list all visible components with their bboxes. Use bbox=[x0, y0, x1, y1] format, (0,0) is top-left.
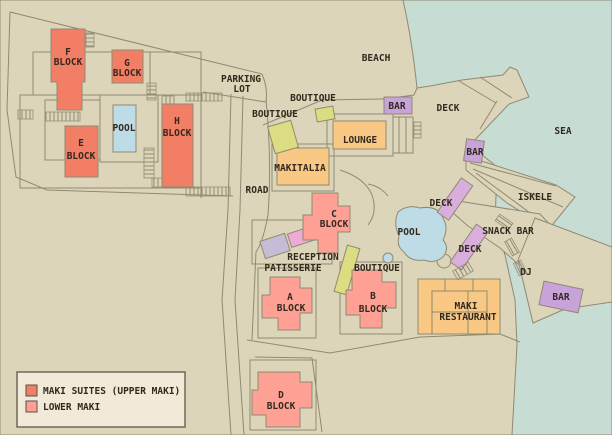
label-e-block-word: BLOCK bbox=[67, 151, 96, 162]
label-b-block-word: BLOCK bbox=[359, 304, 388, 315]
label-e-block: E bbox=[78, 138, 84, 149]
label-pool-center: POOL bbox=[398, 227, 421, 238]
label-reception: RECEPTION bbox=[287, 252, 339, 263]
resort-map: F BLOCK G BLOCK E BLOCK H BLOCK POOL PAR… bbox=[0, 0, 612, 435]
label-bar-mid: BAR bbox=[466, 147, 483, 158]
label-lounge: LOUNGE bbox=[343, 135, 378, 146]
label-patisserie: PATISSERIE bbox=[264, 263, 321, 274]
label-road: ROAD bbox=[246, 185, 269, 196]
label-d-block: D bbox=[278, 390, 284, 401]
label-bar-top: BAR bbox=[388, 101, 405, 112]
stairs bbox=[144, 148, 154, 178]
label-b-block: B bbox=[370, 291, 376, 302]
stairs bbox=[147, 83, 156, 100]
legend-label-lower-maki: LOWER MAKI bbox=[43, 402, 100, 413]
jacuzzi-pool bbox=[383, 253, 393, 263]
label-c-block-word: BLOCK bbox=[320, 219, 349, 230]
label-boutique-lower: BOUTIQUE bbox=[354, 263, 400, 274]
label-deck-mid: DECK bbox=[430, 198, 453, 209]
label-sea: SEA bbox=[554, 126, 571, 137]
stairs bbox=[86, 33, 94, 47]
stairs bbox=[46, 112, 80, 121]
stairs bbox=[18, 110, 33, 119]
label-boutique-top: BOUTIQUE bbox=[290, 93, 336, 104]
label-a-block: A bbox=[287, 292, 293, 303]
label-d-block-word: BLOCK bbox=[267, 401, 296, 412]
stairs bbox=[186, 93, 222, 101]
legend-swatch-lower-maki bbox=[26, 401, 37, 412]
legend-swatch-upper-maki bbox=[26, 385, 37, 396]
stairs bbox=[162, 96, 174, 104]
label-h-block: H bbox=[174, 116, 180, 127]
legend: MAKI SUITES (UPPER MAKI) LOWER MAKI bbox=[17, 372, 185, 427]
label-boutique-mid: BOUTIQUE bbox=[252, 109, 298, 120]
label-snack-bar: SNACK BAR bbox=[482, 226, 534, 237]
label-dj: DJ bbox=[520, 267, 531, 278]
label-beach: BEACH bbox=[362, 53, 391, 64]
label-deck-lower: DECK bbox=[459, 244, 482, 255]
label-parking-lot-2: LOT bbox=[233, 84, 250, 95]
label-h-block-word: BLOCK bbox=[163, 128, 192, 139]
label-makitalia: MAKITALIA bbox=[274, 163, 326, 174]
resort-map-canvas: F BLOCK G BLOCK E BLOCK H BLOCK POOL PAR… bbox=[0, 0, 612, 435]
legend-label-upper-maki: MAKI SUITES (UPPER MAKI) bbox=[43, 386, 180, 397]
boutique-kiosk-top bbox=[315, 106, 335, 122]
label-f-block-word: BLOCK bbox=[54, 57, 83, 68]
label-iskele: ISKELE bbox=[518, 192, 553, 203]
label-restaurant: MAKI bbox=[455, 301, 478, 312]
label-deck-top: DECK bbox=[437, 103, 460, 114]
label-bar-bottom: BAR bbox=[552, 292, 569, 303]
legend-box bbox=[17, 372, 185, 427]
stairs bbox=[186, 187, 230, 196]
label-a-block-word: BLOCK bbox=[277, 303, 306, 314]
label-restaurant-2: RESTAURANT bbox=[439, 312, 496, 323]
label-g-block-word: BLOCK bbox=[113, 68, 142, 79]
label-pool-left: POOL bbox=[113, 123, 136, 134]
deck-stairs bbox=[414, 122, 421, 138]
